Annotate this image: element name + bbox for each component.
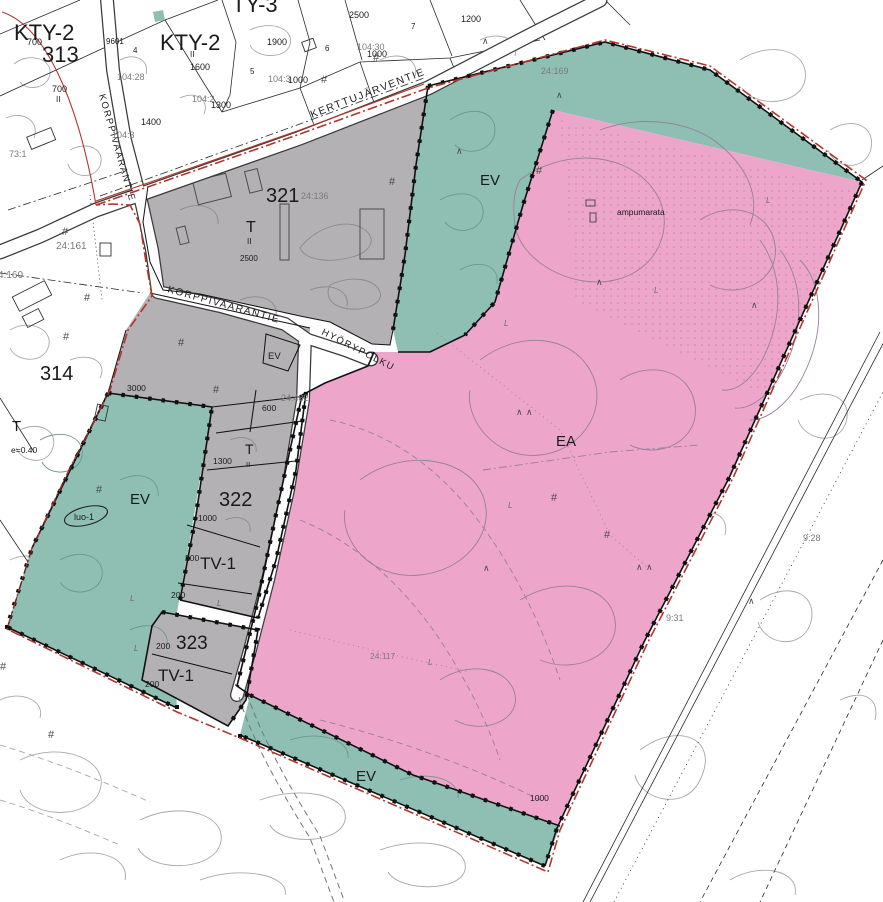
area-3000: 3000 [127,383,146,393]
map-canvas: # # # # # # # # # # # # # # ∧ ∧ ∧ ∧ ∧ ∧ … [0,0,883,902]
hash-symbol: # [551,492,558,504]
zone-label-ty3: TY-3 [232,0,278,17]
vegetation-mark: L [766,196,770,205]
zone-code-ev-south: EV [356,768,376,785]
vegetation-mark: L [504,319,508,328]
area-1300-322: 1300 [213,456,232,466]
luo1-label: luo-1 [74,512,94,522]
area-200-d: 200 [145,679,159,689]
plot-digit-5: 5 [250,67,255,76]
hash-symbol: # [389,176,396,188]
efficiency-label: e=0.40 [11,445,38,455]
block-label-323: 323 [176,633,208,654]
area-200-a: 200 [185,553,199,563]
hash-symbol: # [84,292,91,304]
hash-symbol: # [63,331,70,343]
area-200-c: 200 [156,641,170,651]
parcel-24-136: 24:136 [301,191,329,201]
parcel-9-28: 9:28 [803,533,821,543]
area-700b: 700 [52,84,67,94]
area-1600: 1600 [190,62,210,72]
tree-symbol: ∧ [751,300,758,310]
zone-code-tv1-b: TV-1 [158,666,194,685]
parcel-9-31: 9:31 [666,613,684,623]
area-1000-322: 1000 [198,513,217,523]
parcel-24-482: 24:482 [281,393,309,403]
block-label-313: 313 [42,42,79,67]
area-1400: 1400 [141,117,161,127]
hash-symbol: # [0,661,7,673]
zone-code-t-321: T [246,219,256,236]
tree-symbol: ∧ [556,90,563,100]
area-1200: 1200 [461,14,481,24]
block-label-322: 322 [219,489,252,511]
tree-symbol: ∧ [526,407,533,417]
plot-digit-6: 6 [325,44,330,53]
parcel-104-3: 104:3 [268,74,291,84]
tree-symbol: ∧ [483,563,490,573]
vegetation-mark: L [428,658,432,667]
parcel-24-161: 24:161 [56,241,87,252]
zone-code-t-west: T [12,418,21,435]
zone-code-ea: EA [556,433,576,450]
parcel-104-28: 104:28 [117,72,145,82]
area-1900: 1900 [267,37,287,47]
tree-symbol: ∧ [636,562,643,572]
zone-code-tv1-a: TV-1 [200,554,236,573]
area-2500-north: 2500 [349,10,369,20]
hash-symbol: # [321,74,328,86]
hash-symbol: # [96,484,103,496]
area-1000-ev: 1000 [530,793,549,803]
area-9601: 9601 [106,37,124,46]
vegetation-mark: L [134,644,138,653]
parcel-24-117: 24:117 [370,651,396,661]
zoning-plan-map: # # # # # # # # # # # # # # ∧ ∧ ∧ ∧ ∧ ∧ … [0,0,883,902]
hash-symbol: # [62,226,69,238]
hash-symbol: # [178,337,185,349]
parcel-4-160: 4:160 [0,270,23,281]
zone-code-ev-small: EV [268,351,281,362]
tree-symbol: ∧ [596,277,603,287]
vegetation-mark: L [217,599,221,608]
storey-count-313: II [56,95,60,104]
area-600: 600 [262,403,276,413]
tree-symbol: ∧ [516,407,523,417]
hash-symbol: # [604,529,611,541]
parcel-104-2: 104:2 [192,94,215,104]
parcel-73-1: 73:1 [9,149,27,159]
hash-symbol: # [48,729,55,741]
tree-symbol: ∧ [456,146,463,156]
zone-code-ev-north: EV [480,172,500,189]
zone-code-t-322: T [245,441,254,457]
parcel-104-3b: 104:3 [112,130,135,140]
area-2500-321: 2500 [240,254,258,263]
parcel-104-30: 104:30 [357,42,385,52]
hash-symbol: # [536,165,543,177]
vegetation-mark: L [654,286,658,295]
plot-digit-4: 4 [133,46,138,55]
tree-symbol: ∧ [646,562,653,572]
tree-symbol: ∧ [748,596,755,606]
vegetation-mark: L [130,594,134,603]
area-1000-b: 1000 [288,75,308,85]
tree-symbol: ∧ [482,36,489,46]
area-200-b: 200 [171,590,185,600]
block-label-314: 314 [40,363,73,385]
ampumarata-label: ampumarata [617,207,665,217]
block-label-321: 321 [266,185,299,207]
zone-ev-tiny-polygon [153,10,165,22]
parcel-24-169: 24:169 [541,66,569,76]
hash-symbol: # [213,384,220,396]
vegetation-mark: L [508,501,512,510]
storey-count-322: II [246,460,250,469]
storey-count-321: II [247,237,251,246]
storey-count-kty2e: II [190,50,194,59]
plot-digit-7: 7 [411,22,416,31]
area-700: 700 [27,37,42,47]
zones-fills [7,10,862,866]
zone-code-ev-west: EV [130,491,150,508]
